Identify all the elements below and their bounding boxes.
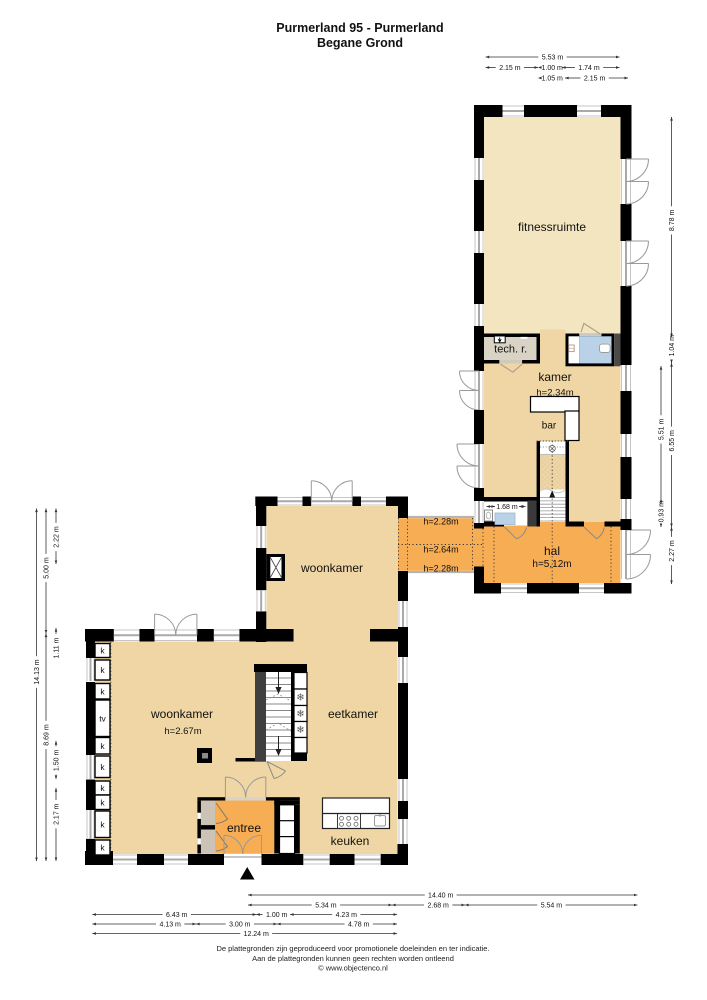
- svg-text:2.68 m: 2.68 m: [427, 902, 449, 909]
- svg-text:2.17 m: 2.17 m: [53, 803, 60, 825]
- svg-text:14.13 m: 14.13 m: [34, 659, 41, 684]
- svg-text:1.68 m: 1.68 m: [496, 504, 518, 511]
- svg-text:2.15 m: 2.15 m: [584, 75, 606, 82]
- svg-text:© www.objectenco.nl: © www.objectenco.nl: [318, 964, 388, 973]
- svg-text:Begane Grond: Begane Grond: [317, 36, 403, 50]
- svg-text:4.13 m: 4.13 m: [159, 921, 181, 928]
- svg-text:tv: tv: [99, 713, 106, 723]
- svg-text:5.34 m: 5.34 m: [315, 902, 337, 909]
- svg-text:❄: ❄: [296, 693, 304, 704]
- svg-text:3.00 m: 3.00 m: [229, 921, 251, 928]
- svg-text:6.43 m: 6.43 m: [166, 912, 188, 919]
- svg-text:entree: entree: [227, 821, 261, 835]
- svg-text:1.04 m: 1.04 m: [669, 335, 676, 357]
- svg-text:5.54 m: 5.54 m: [541, 902, 563, 909]
- svg-text:De plattegronden zijn geproduc: De plattegronden zijn geproduceerd voor …: [216, 944, 489, 953]
- svg-text:4.23 m: 4.23 m: [336, 912, 358, 919]
- svg-text:1.50 m: 1.50 m: [53, 750, 60, 772]
- svg-text:2.27 m: 2.27 m: [669, 540, 676, 562]
- svg-text:bar: bar: [542, 421, 557, 432]
- svg-text:h=5,12m: h=5,12m: [532, 559, 571, 570]
- svg-text:tech. r.: tech. r.: [494, 344, 527, 356]
- svg-text:12.24 m: 12.24 m: [244, 931, 269, 938]
- svg-text:4.78 m: 4.78 m: [348, 921, 370, 928]
- svg-text:2.22 m: 2.22 m: [53, 526, 60, 548]
- svg-text:Aan de plattegronden kunnen ge: Aan de plattegronden kunnen geen rechten…: [252, 954, 454, 963]
- svg-text:2.15 m: 2.15 m: [499, 65, 521, 72]
- svg-text:8.78 m: 8.78 m: [669, 210, 676, 232]
- svg-text:❄: ❄: [296, 725, 304, 736]
- svg-text:h=2.64m: h=2.64m: [423, 545, 458, 555]
- svg-text:8.69 m: 8.69 m: [43, 724, 50, 746]
- svg-text:h=2.67m: h=2.67m: [164, 726, 201, 737]
- svg-text:fitnessruimte: fitnessruimte: [518, 220, 586, 234]
- svg-text:Purmerland 95 - Purmerland: Purmerland 95 - Purmerland: [276, 21, 443, 35]
- svg-text:kamer: kamer: [538, 370, 571, 384]
- svg-text:5.51 m: 5.51 m: [658, 419, 665, 441]
- svg-text:5.53 m: 5.53 m: [542, 54, 564, 61]
- svg-text:woonkamer: woonkamer: [150, 707, 213, 721]
- svg-text:0.93 m: 0.93 m: [658, 501, 665, 523]
- svg-text:1.74 m: 1.74 m: [578, 65, 600, 72]
- svg-text:1.00 m: 1.00 m: [541, 65, 563, 72]
- svg-text:6.55 m: 6.55 m: [669, 430, 676, 452]
- svg-text:eetkamer: eetkamer: [328, 707, 378, 721]
- svg-text:1.11 m: 1.11 m: [53, 637, 60, 658]
- svg-text:hal: hal: [544, 544, 560, 558]
- svg-text:14.40 m: 14.40 m: [428, 892, 453, 899]
- svg-text:❄: ❄: [296, 709, 304, 720]
- svg-text:1.00 m: 1.00 m: [266, 912, 288, 919]
- svg-text:h=2.28m: h=2.28m: [423, 517, 458, 527]
- svg-text:1.05 m: 1.05 m: [541, 75, 563, 82]
- svg-text:keuken: keuken: [331, 834, 370, 848]
- svg-text:woonkamer: woonkamer: [300, 561, 363, 575]
- svg-text:h=2.28m: h=2.28m: [423, 564, 458, 574]
- svg-text:5.00 m: 5.00 m: [43, 557, 50, 579]
